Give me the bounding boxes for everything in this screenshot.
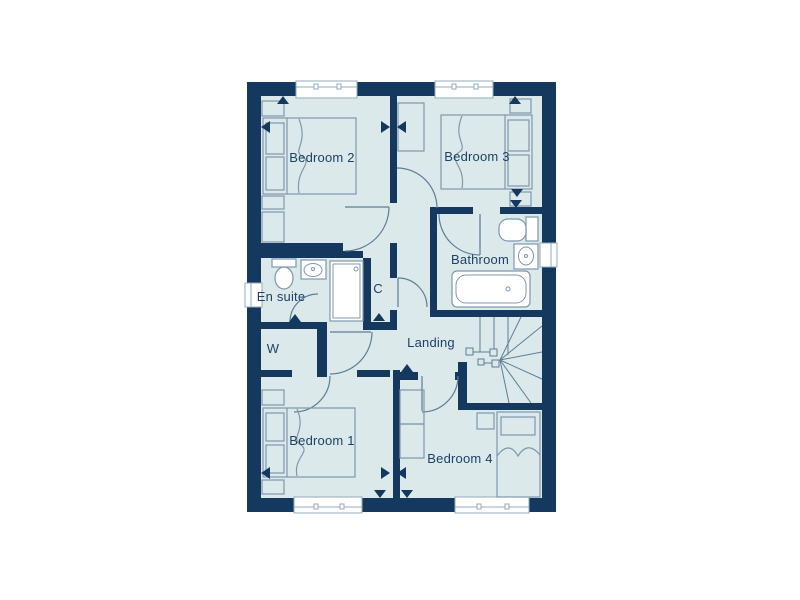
window-bathroom (540, 243, 557, 267)
floor-plan: Bedroom 2 Bedroom 3 Bathroom En suite C … (0, 0, 800, 600)
wall-segment (363, 258, 371, 325)
newel-post (492, 360, 499, 367)
window-bedroom3 (435, 81, 493, 98)
room-label-wardrobe: W (267, 341, 280, 356)
room-label-cupboard: C (373, 281, 383, 296)
room-label-landing: Landing (407, 335, 455, 350)
room-label-bathroom: Bathroom (451, 252, 509, 267)
wall-segment (261, 370, 292, 377)
floor-plan-page: Bedroom 2 Bedroom 3 Bathroom En suite C … (0, 0, 800, 600)
wall-segment (430, 310, 542, 317)
wall-segment (261, 243, 343, 251)
room-label-bedroom-1: Bedroom 1 (289, 433, 354, 448)
toilet-cistern (272, 259, 296, 267)
wall-segment (317, 322, 327, 377)
room-label-bedroom-2: Bedroom 2 (289, 150, 354, 165)
toilet-cistern (526, 217, 538, 241)
wall-segment (261, 251, 363, 258)
wall-segment (500, 207, 542, 214)
bathtub (452, 271, 530, 307)
wall-segment (363, 322, 397, 330)
newel-post (490, 349, 497, 356)
newel-post (478, 359, 484, 365)
wall-segment (458, 403, 556, 410)
wall-segment (430, 207, 437, 317)
wall-segment (261, 322, 317, 329)
window-bedroom2 (296, 81, 357, 98)
wall-segment (390, 243, 397, 278)
room-label-bedroom-3: Bedroom 3 (444, 149, 509, 164)
toilet-bowl (275, 267, 293, 289)
room-label-en-suite: En suite (257, 289, 306, 304)
wall-segment (430, 207, 473, 214)
wall-segment (458, 362, 467, 410)
wall-segment (357, 370, 390, 377)
window-bedroom1 (294, 497, 362, 513)
wall-segment (393, 370, 400, 498)
wall-segment (393, 372, 418, 380)
window-bedroom4 (455, 497, 529, 513)
wall-segment (390, 96, 397, 203)
newel-post (466, 348, 473, 355)
toilet-bowl (499, 219, 526, 241)
room-label-bedroom-4: Bedroom 4 (427, 451, 492, 466)
